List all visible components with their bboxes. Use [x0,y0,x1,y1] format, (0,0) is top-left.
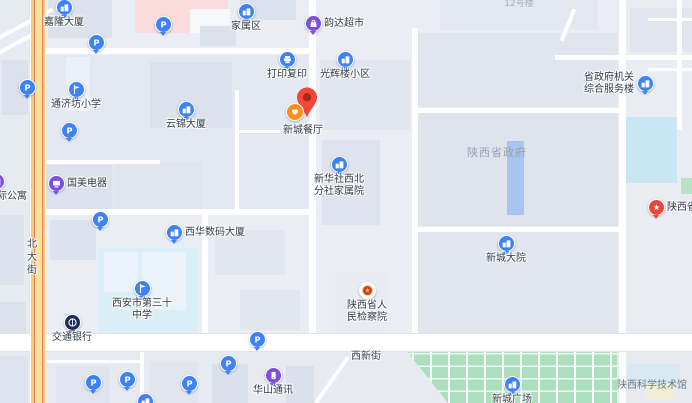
block [418,232,618,333]
road [46,360,142,363]
bag-icon [305,15,322,32]
building-icon [166,224,183,241]
school-building [104,252,138,292]
building-icon [56,0,73,16]
marker-pointer [53,191,59,195]
parking-icon: P [220,355,237,372]
building-icon [331,156,348,173]
marker-pointer [310,31,316,35]
road [46,48,316,54]
road [46,160,160,164]
road [235,90,239,210]
area-label-building-12: 12号楼 [504,0,533,9]
poi-label: 华山通讯 [253,385,293,397]
poi-label: 光辉楼小区 [320,69,370,81]
print-icon [279,51,296,68]
parking-icon: P [61,122,78,139]
svg-text:P: P [93,37,99,47]
road [46,209,316,215]
poi-label: 新城大院 [486,253,526,265]
tv-icon [48,175,65,192]
building [240,290,300,330]
parking-icon: P [119,371,136,388]
marker-pointer [97,227,103,231]
building-icon [498,235,515,252]
building-icon [238,3,255,20]
building [50,220,96,260]
star-icon [648,199,665,216]
building [0,356,28,403]
svg-text:P: P [90,377,96,387]
parking-icon: P [19,79,36,96]
poi-label: 通济坊小学 [51,99,101,111]
parking-icon: P [249,331,266,348]
marker-pointer [171,240,177,244]
green-patch [681,178,692,194]
parking-icon: P [155,16,172,33]
parking-icon: P [88,34,105,51]
marker-pointer [225,371,231,375]
marker-pointer [93,50,99,54]
svg-text:P: P [24,82,30,92]
poi-label: 嘉隆大厦 [44,17,84,29]
area-label-shaanxi-provincial-government: 陕西省政府 [467,144,527,160]
building [116,162,202,209]
svg-text:P: P [160,19,166,29]
building [0,302,26,336]
road [677,0,682,130]
emblem-icon [359,282,376,299]
road [235,130,280,133]
road-label-beidajie: 北大街 [23,238,38,277]
building-icon [137,393,154,403]
poi-label: 陕西省 [667,202,692,214]
svg-text:P: P [97,214,103,224]
poi-label: 打印复印 [267,69,307,81]
road [412,28,418,334]
marker-pointer [90,390,96,394]
poi-label: 际公寓 [0,191,27,203]
area-label-shaanxi-science-museum: 陕西科学技术馆 [617,376,687,391]
building [630,8,692,52]
restaurant-category-icon [286,103,304,121]
building-icon [637,75,654,92]
building [56,366,110,403]
poi-label: 西安市第三十中学 [112,298,172,321]
poi-label: 西华数码大厦 [185,227,245,239]
water-pool [623,117,677,183]
poi-label: 家属区 [231,21,261,33]
road-beidajie [30,0,46,403]
selected-poi-label: 新城餐厅 [283,121,323,136]
poi-label: 新城广场 [492,394,532,403]
poi-label: 省政府机关综合服务楼 [584,72,634,95]
road-xixinjie [0,334,692,351]
parking-icon: P [85,374,102,391]
poi-label: 韵达超市 [324,18,364,30]
svg-text:P: P [254,334,260,344]
poi-label: 交通银行 [52,332,92,344]
poi-label: 云锦大厦 [166,119,206,131]
marker-pointer [160,32,166,36]
block [418,33,618,107]
poi-label: 新华社西北分社家属院 [314,174,364,197]
marker-pointer [653,215,659,219]
marker-pointer [124,387,130,391]
svg-text:P: P [124,374,130,384]
poi-label: 国美电器 [67,178,107,190]
svg-text:P: P [186,378,192,388]
parking-icon: P [92,211,109,228]
marker-pointer [254,347,260,351]
marker-pointer [186,391,192,395]
road [648,68,692,71]
building-icon [178,101,195,118]
poi-label: 陕西省人民检察院 [347,300,387,323]
parking-icon: P [181,375,198,392]
marker-pointer [24,95,30,99]
road [412,108,625,113]
road [555,55,692,60]
marker-pointer [642,91,648,95]
phone-icon [265,367,282,384]
building [0,215,24,285]
road [648,18,692,21]
building-icon [337,51,354,68]
road-label-xixinjie: 西新街 [351,347,381,362]
svg-text:P: P [225,358,231,368]
road [309,0,316,334]
bank-icon [64,314,81,331]
road [418,227,625,232]
building-icon [504,376,521,393]
marker-pointer [66,138,72,142]
school-icon [68,81,85,98]
map-canvas[interactable]: 陕西省政府 陕西科学技术馆 12号楼 北大街 西新街 新城餐厅 嘉隆大厦家属区韵… [0,0,692,403]
school-icon [134,280,151,297]
svg-text:P: P [66,125,72,135]
